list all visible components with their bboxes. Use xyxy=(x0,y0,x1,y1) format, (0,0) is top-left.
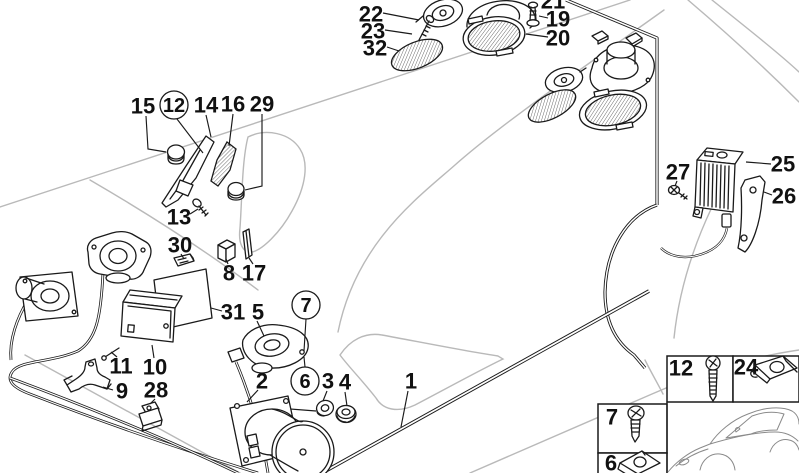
callout-5: 5 xyxy=(252,300,264,325)
callout-32: 32 xyxy=(363,36,387,61)
square-speaker-top xyxy=(87,232,150,283)
grommet-29 xyxy=(228,183,244,201)
callout-8: 8 xyxy=(223,261,235,286)
callout-14: 14 xyxy=(194,93,219,118)
callout-25: 25 xyxy=(771,152,795,177)
screw-19 xyxy=(527,2,539,26)
callout-16: 16 xyxy=(221,92,245,117)
callout-20: 20 xyxy=(546,26,570,51)
round-grille-rear-right xyxy=(576,84,650,135)
tweeter-plate-5 xyxy=(228,325,308,373)
inset-panel: 12 24 7 6 xyxy=(598,355,799,473)
callout-17: 17 xyxy=(242,261,266,286)
callout-3: 3 xyxy=(322,369,334,394)
parts-diagram: 22 23 32 21 19 20 15 12 14 16 29 13 30 8… xyxy=(0,0,799,473)
screw-13 xyxy=(191,197,208,216)
callout-7: 7 xyxy=(300,295,311,317)
callout-6: 6 xyxy=(299,371,310,393)
callout-4: 4 xyxy=(339,370,352,395)
callout-31: 31 xyxy=(221,300,245,325)
connector-28 xyxy=(139,402,162,431)
dome-speaker-plate xyxy=(590,42,654,94)
inset-label-7: 7 xyxy=(606,405,618,430)
amplifier-25 xyxy=(693,148,743,227)
housing-box-10 xyxy=(121,290,182,342)
washer-3 xyxy=(315,399,335,418)
callout-10: 10 xyxy=(143,355,167,380)
connector-8 xyxy=(218,240,235,262)
callout-28: 28 xyxy=(144,378,168,403)
inset-label-24: 24 xyxy=(734,355,759,380)
tweeter-rear-left xyxy=(416,0,466,32)
callout-labels: 22 23 32 21 19 20 15 12 14 16 29 13 30 8… xyxy=(109,0,796,404)
bracket-26 xyxy=(738,176,765,252)
inset-label-6: 6 xyxy=(605,451,617,473)
rear-window-edge xyxy=(688,0,799,102)
callout-12: 12 xyxy=(163,95,185,117)
callout-1: 1 xyxy=(405,369,417,394)
plate-17 xyxy=(243,229,252,259)
square-speaker-side xyxy=(16,272,78,321)
callout-29: 29 xyxy=(250,92,274,117)
bottom-center-group xyxy=(228,325,356,473)
callout-27: 27 xyxy=(666,160,690,185)
callout-13: 13 xyxy=(167,205,191,230)
callout-11: 11 xyxy=(109,354,132,379)
callout-9: 9 xyxy=(116,379,128,404)
callout-30: 30 xyxy=(168,233,192,258)
side-mirror-outline xyxy=(340,334,503,409)
inset-label-12: 12 xyxy=(669,356,693,381)
pillar-trim-16 xyxy=(211,142,236,186)
tweeter-wire-connector xyxy=(228,348,244,362)
nut-4 xyxy=(336,406,356,423)
callout-26: 26 xyxy=(772,184,796,209)
trunk-edge xyxy=(712,0,799,72)
callout-2: 2 xyxy=(256,369,268,394)
screw-27 xyxy=(669,186,688,200)
fender-bottom-line xyxy=(645,360,663,394)
callout-15: 15 xyxy=(131,94,155,119)
rear-fender-line xyxy=(674,207,712,338)
shelf-clip-left xyxy=(592,31,608,44)
grommet-15 xyxy=(168,145,185,164)
